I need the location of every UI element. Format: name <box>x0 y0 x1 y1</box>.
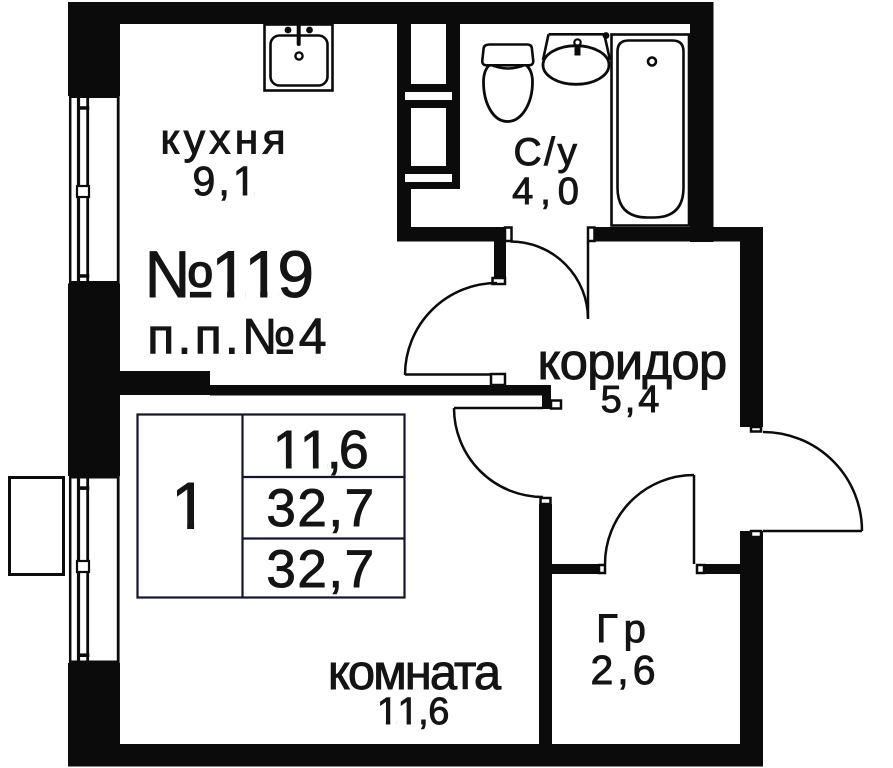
svg-text:32,7: 32,7 <box>266 479 375 538</box>
svg-text:9,1: 9,1 <box>192 158 255 204</box>
svg-text:32,7: 32,7 <box>266 540 375 599</box>
svg-text:1: 1 <box>171 469 208 543</box>
svg-text:11,6: 11,6 <box>377 691 450 733</box>
svg-text:Гр: Гр <box>596 607 654 651</box>
svg-text:4,0: 4,0 <box>512 171 586 213</box>
svg-text:кухня: кухня <box>160 116 289 164</box>
svg-text:5,4: 5,4 <box>601 379 663 421</box>
svg-text:2,6: 2,6 <box>591 647 660 693</box>
svg-text:п.п.№4: п.п.№4 <box>147 309 330 365</box>
svg-text:№119: №119 <box>144 237 314 311</box>
svg-text:С/у: С/у <box>514 131 580 174</box>
svg-text:11,6: 11,6 <box>273 420 369 480</box>
